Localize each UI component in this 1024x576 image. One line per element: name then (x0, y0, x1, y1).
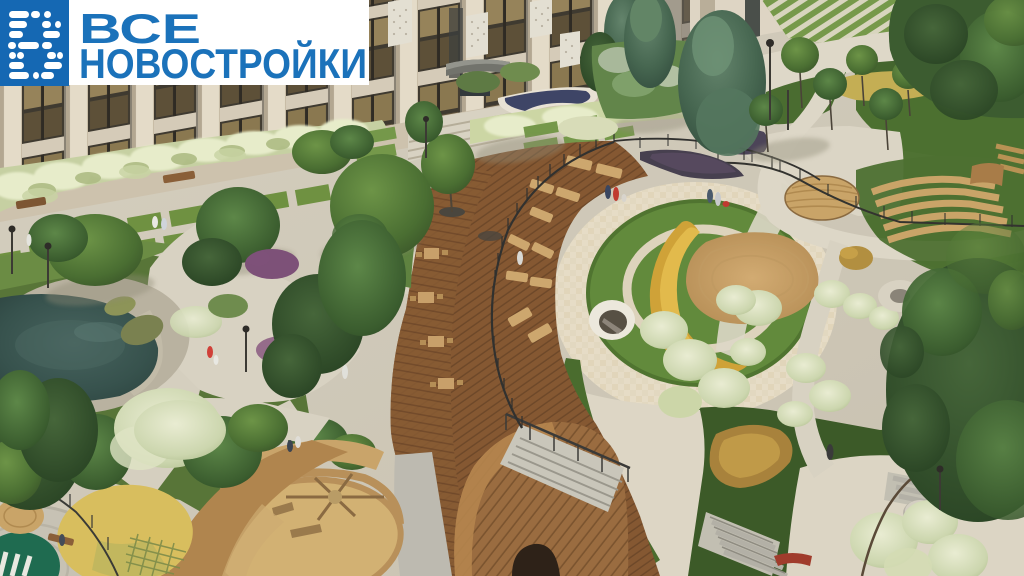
svg-text:НОВОСТРОЙКИ: НОВОСТРОЙКИ (79, 39, 367, 87)
